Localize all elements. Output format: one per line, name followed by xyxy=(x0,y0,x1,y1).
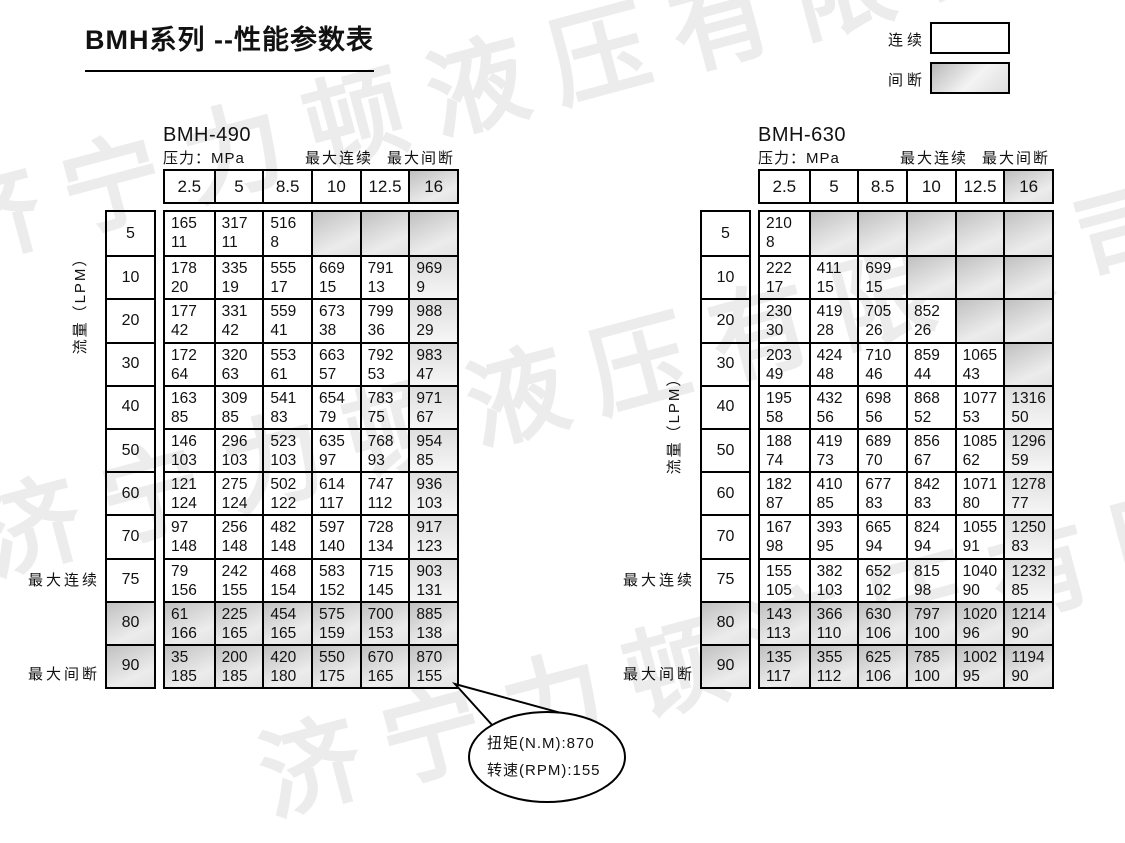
data-grid: 2108222174111569915230304192870526852262… xyxy=(758,210,1054,689)
speed-value: 42 xyxy=(222,321,263,340)
speed-value: 103 xyxy=(222,451,263,470)
data-cell: 33519 xyxy=(214,255,263,298)
data-cell: 76893 xyxy=(360,428,409,471)
bmh-490-table-section: BMH-490 压力：MPa 最大连续 最大间断 2.558.51012.516… xyxy=(0,0,470,700)
flow-cell: 30 xyxy=(107,342,154,385)
torque-value: 1085 xyxy=(963,432,1004,451)
data-cell: 33142 xyxy=(214,298,263,341)
speed-value: 36 xyxy=(368,321,409,340)
torque-value: 1278 xyxy=(1011,475,1052,494)
speed-value: 90 xyxy=(1011,667,1052,686)
data-cell: 67338 xyxy=(311,298,360,341)
torque-value: 135 xyxy=(766,648,809,667)
pressure-unit-label: 压力：MPa xyxy=(163,147,245,168)
data-cell xyxy=(360,212,409,255)
data-cell: 454165 xyxy=(262,601,311,644)
max-continuous-header-label: 最大连续 xyxy=(305,147,373,168)
torque-value: 256 xyxy=(222,518,263,537)
speed-value: 103 xyxy=(416,494,457,513)
pressure-header-row: 2.558.51012.516 xyxy=(758,169,1054,204)
speed-value: 85 xyxy=(817,494,858,513)
data-cell: 20349 xyxy=(760,342,809,385)
torque-value: 1296 xyxy=(1011,432,1052,451)
data-cell: 97167 xyxy=(408,385,457,428)
torque-value: 654 xyxy=(319,389,360,408)
pressure-cell: 8.5 xyxy=(262,171,311,202)
torque-value: 200 xyxy=(222,648,263,667)
torque-value: 182 xyxy=(766,475,809,494)
speed-value: 95 xyxy=(963,667,1004,686)
speed-value: 15 xyxy=(865,278,906,297)
torque-value: 165 xyxy=(171,214,214,233)
data-cell: 66357 xyxy=(311,342,360,385)
max-continuous-header-label: 最大连续 xyxy=(900,147,968,168)
data-cell: 67783 xyxy=(857,471,906,514)
speed-value: 52 xyxy=(914,408,955,427)
data-cell: 66594 xyxy=(857,514,906,557)
torque-value: 222 xyxy=(766,259,809,278)
torque-value: 868 xyxy=(914,389,955,408)
data-cell: 86852 xyxy=(906,385,955,428)
data-cell: 670165 xyxy=(360,644,409,687)
speed-value: 56 xyxy=(865,408,906,427)
speed-value: 145 xyxy=(368,581,409,600)
torque-value: 824 xyxy=(914,518,955,537)
torque-value: 309 xyxy=(222,389,263,408)
torque-value: 335 xyxy=(222,259,263,278)
torque-value: 516 xyxy=(270,214,311,233)
flow-cell: 75 xyxy=(702,558,749,601)
data-cell: 68970 xyxy=(857,428,906,471)
torque-value: 783 xyxy=(368,389,409,408)
torque-value: 97 xyxy=(171,518,214,537)
torque-value: 785 xyxy=(914,648,955,667)
data-cell: 482148 xyxy=(262,514,311,557)
torque-value: 954 xyxy=(416,432,457,451)
torque-value: 1194 xyxy=(1011,648,1052,667)
flow-axis-label: 流量（LPM） xyxy=(663,362,683,482)
data-cell: 575159 xyxy=(311,601,360,644)
torque-value: 1077 xyxy=(963,389,1004,408)
torque-value: 143 xyxy=(766,605,809,624)
speed-value: 100 xyxy=(914,667,955,686)
torque-value: 553 xyxy=(270,346,311,365)
torque-value: 1040 xyxy=(963,562,1004,581)
data-cell: 81598 xyxy=(906,558,955,601)
speed-value: 117 xyxy=(319,494,360,513)
data-cell: 85226 xyxy=(906,298,955,341)
speed-value: 74 xyxy=(766,451,809,470)
flow-cell: 60 xyxy=(107,471,154,514)
speed-value: 11 xyxy=(171,233,214,252)
speed-value: 154 xyxy=(270,581,311,600)
data-cell: 104090 xyxy=(955,558,1004,601)
data-cell: 17264 xyxy=(165,342,214,385)
torque-value: 167 xyxy=(766,518,809,537)
torque-value: 178 xyxy=(171,259,214,278)
torque-value: 541 xyxy=(270,389,311,408)
data-cell: 42448 xyxy=(809,342,858,385)
torque-value: 420 xyxy=(270,648,311,667)
data-cell: 18287 xyxy=(760,471,809,514)
data-cell: 143113 xyxy=(760,601,809,644)
data-cell: 63597 xyxy=(311,428,360,471)
torque-value: 670 xyxy=(368,648,409,667)
max-intermittent-header-label: 最大间断 xyxy=(387,147,455,168)
torque-value: 983 xyxy=(416,346,457,365)
data-cell: 41085 xyxy=(809,471,858,514)
data-cell: 715145 xyxy=(360,558,409,601)
pressure-header-row: 2.558.51012.516 xyxy=(163,169,459,204)
torque-value: 917 xyxy=(416,518,457,537)
torque-value: 482 xyxy=(270,518,311,537)
torque-value: 410 xyxy=(817,475,858,494)
torque-value: 210 xyxy=(766,214,809,233)
speed-value: 90 xyxy=(1011,624,1052,643)
speed-value: 140 xyxy=(319,537,360,556)
data-cell: 700153 xyxy=(360,601,409,644)
torque-value: 559 xyxy=(270,302,311,321)
torque-value: 382 xyxy=(817,562,858,581)
torque-value: 669 xyxy=(319,259,360,278)
speed-value: 96 xyxy=(963,624,1004,643)
data-cell: 135117 xyxy=(760,644,809,687)
torque-value: 652 xyxy=(865,562,906,581)
pressure-cell: 10 xyxy=(906,171,955,202)
data-cell: 155105 xyxy=(760,558,809,601)
torque-value: 715 xyxy=(368,562,409,581)
pressure-cell: 12.5 xyxy=(360,171,409,202)
speed-value: 77 xyxy=(1011,494,1052,513)
speed-value: 106 xyxy=(865,667,906,686)
speed-value: 26 xyxy=(914,321,955,340)
data-cell: 105591 xyxy=(955,514,1004,557)
speed-value: 30 xyxy=(766,321,809,340)
speed-value: 159 xyxy=(319,624,360,643)
torque-value: 792 xyxy=(368,346,409,365)
data-cell: 18874 xyxy=(760,428,809,471)
data-cell: 355112 xyxy=(809,644,858,687)
torque-value: 791 xyxy=(368,259,409,278)
pressure-cell: 8.5 xyxy=(857,171,906,202)
speed-value: 46 xyxy=(865,365,906,384)
speed-value: 155 xyxy=(416,667,457,686)
max-intermittent-row-label: 最大间断 xyxy=(597,663,695,684)
speed-value: 83 xyxy=(865,494,906,513)
torque-value: 275 xyxy=(222,475,263,494)
speed-value: 9 xyxy=(416,278,457,297)
speed-value: 49 xyxy=(766,365,809,384)
data-cell: 523103 xyxy=(262,428,311,471)
torque-value: 163 xyxy=(171,389,214,408)
data-cell: 69856 xyxy=(857,385,906,428)
speed-value: 138 xyxy=(416,624,457,643)
speed-value: 56 xyxy=(817,408,858,427)
speed-value: 15 xyxy=(319,278,360,297)
speed-value: 61 xyxy=(270,365,311,384)
torque-value: 852 xyxy=(914,302,955,321)
torque-value: 555 xyxy=(270,259,311,278)
data-cell: 885138 xyxy=(408,601,457,644)
torque-value: 203 xyxy=(766,346,809,365)
speed-value: 106 xyxy=(865,624,906,643)
torque-value: 1232 xyxy=(1011,562,1052,581)
torque-value: 677 xyxy=(865,475,906,494)
speed-value: 93 xyxy=(368,451,409,470)
torque-value: 1071 xyxy=(963,475,1004,494)
speed-value: 59 xyxy=(1011,451,1052,470)
data-cell: 19558 xyxy=(760,385,809,428)
speed-value: 97 xyxy=(319,451,360,470)
callout-text: 扭矩(N.M):870 转速(RPM):155 xyxy=(487,730,601,784)
flow-cell: 60 xyxy=(702,471,749,514)
speed-value: 148 xyxy=(270,537,311,556)
data-cell: 79253 xyxy=(360,342,409,385)
speed-value: 122 xyxy=(270,494,311,513)
speed-value: 53 xyxy=(368,365,409,384)
speed-value: 85 xyxy=(222,408,263,427)
torque-value: 424 xyxy=(817,346,858,365)
speed-value: 103 xyxy=(171,451,214,470)
torque-value: 988 xyxy=(416,302,457,321)
torque-value: 856 xyxy=(914,432,955,451)
speed-value: 47 xyxy=(416,365,457,384)
speed-value: 17 xyxy=(766,278,809,297)
flow-cell: 30 xyxy=(702,342,749,385)
data-cell: 9699 xyxy=(408,255,457,298)
torque-value: 523 xyxy=(270,432,311,451)
torque-value: 177 xyxy=(171,302,214,321)
torque-value: 1316 xyxy=(1011,389,1052,408)
torque-value: 468 xyxy=(270,562,311,581)
data-cell xyxy=(955,212,1004,255)
data-cell: 17742 xyxy=(165,298,214,341)
data-cell: 903131 xyxy=(408,558,457,601)
data-cell: 597140 xyxy=(311,514,360,557)
speed-value: 185 xyxy=(171,667,214,686)
data-cell: 747112 xyxy=(360,471,409,514)
torque-value: 1055 xyxy=(963,518,1004,537)
torque-value: 698 xyxy=(865,389,906,408)
torque-value: 689 xyxy=(865,432,906,451)
torque-value: 815 xyxy=(914,562,955,581)
data-cell: 31711 xyxy=(214,212,263,255)
speed-value: 75 xyxy=(368,408,409,427)
speed-value: 153 xyxy=(368,624,409,643)
data-cell: 106543 xyxy=(955,342,1004,385)
torque-value: 665 xyxy=(865,518,906,537)
flow-cell: 10 xyxy=(107,255,154,298)
flow-cell: 20 xyxy=(702,298,749,341)
torque-value: 79 xyxy=(171,562,214,581)
speed-value: 62 xyxy=(963,451,1004,470)
data-cell: 146103 xyxy=(165,428,214,471)
data-cell: 256148 xyxy=(214,514,263,557)
data-cell xyxy=(408,212,457,255)
speed-value: 67 xyxy=(416,408,457,427)
speed-value: 166 xyxy=(171,624,214,643)
data-cell: 102096 xyxy=(955,601,1004,644)
table-title: BMH-630 xyxy=(758,124,846,147)
data-cell: 728134 xyxy=(360,514,409,557)
torque-value: 225 xyxy=(222,605,263,624)
speed-value: 91 xyxy=(963,537,1004,556)
data-cell xyxy=(311,212,360,255)
data-cell: 79156 xyxy=(165,558,214,601)
torque-value: 432 xyxy=(817,389,858,408)
torque-value: 296 xyxy=(222,432,263,451)
speed-value: 19 xyxy=(222,278,263,297)
torque-value: 885 xyxy=(416,605,457,624)
data-cell: 129659 xyxy=(1003,428,1052,471)
torque-value: 61 xyxy=(171,605,214,624)
speed-value: 85 xyxy=(171,408,214,427)
speed-value: 155 xyxy=(222,581,263,600)
data-cell: 107753 xyxy=(955,385,1004,428)
torque-value: 700 xyxy=(368,605,409,624)
torque-value: 195 xyxy=(766,389,809,408)
torque-value: 747 xyxy=(368,475,409,494)
data-cell: 107180 xyxy=(955,471,1004,514)
speed-value: 38 xyxy=(319,321,360,340)
speed-value: 98 xyxy=(766,537,809,556)
speed-value: 28 xyxy=(817,321,858,340)
data-cell: 78375 xyxy=(360,385,409,428)
data-cell: 797100 xyxy=(906,601,955,644)
speed-value: 105 xyxy=(766,581,809,600)
speed-value: 17 xyxy=(270,278,311,297)
torque-value: 230 xyxy=(766,302,809,321)
speed-value: 112 xyxy=(368,494,409,513)
speed-value: 26 xyxy=(865,321,906,340)
speed-value: 94 xyxy=(914,537,955,556)
torque-value: 320 xyxy=(222,346,263,365)
speed-value: 103 xyxy=(817,581,858,600)
data-cell: 125083 xyxy=(1003,514,1052,557)
data-cell: 468154 xyxy=(262,558,311,601)
torque-value: 630 xyxy=(865,605,906,624)
data-cell xyxy=(809,212,858,255)
speed-value: 58 xyxy=(766,408,809,427)
data-cell: 652102 xyxy=(857,558,906,601)
data-cell: 70526 xyxy=(857,298,906,341)
data-cell: 550175 xyxy=(311,644,360,687)
speed-value: 124 xyxy=(222,494,263,513)
speed-value: 50 xyxy=(1011,408,1052,427)
data-cell: 95485 xyxy=(408,428,457,471)
pressure-cell: 2.5 xyxy=(760,171,809,202)
torque-value: 625 xyxy=(865,648,906,667)
torque-value: 859 xyxy=(914,346,955,365)
torque-value: 155 xyxy=(766,562,809,581)
torque-value: 663 xyxy=(319,346,360,365)
data-cell xyxy=(1003,342,1052,385)
data-cell: 119490 xyxy=(1003,644,1052,687)
torque-value: 366 xyxy=(817,605,858,624)
speed-value: 131 xyxy=(416,581,457,600)
torque-value: 768 xyxy=(368,432,409,451)
table-title: BMH-490 xyxy=(163,124,251,147)
data-cell: 630106 xyxy=(857,601,906,644)
torque-value: 1065 xyxy=(963,346,1004,365)
data-cell: 23030 xyxy=(760,298,809,341)
flow-cell: 75 xyxy=(107,558,154,601)
speed-value: 94 xyxy=(865,537,906,556)
flow-cell: 80 xyxy=(107,601,154,644)
torque-value: 331 xyxy=(222,302,263,321)
data-cell: 200185 xyxy=(214,644,263,687)
flow-cell: 5 xyxy=(107,212,154,255)
data-cell: 242155 xyxy=(214,558,263,601)
torque-value: 146 xyxy=(171,432,214,451)
speed-value: 123 xyxy=(416,537,457,556)
data-cell: 614117 xyxy=(311,471,360,514)
pressure-cell: 16 xyxy=(408,171,457,202)
flow-cell: 10 xyxy=(702,255,749,298)
data-cell: 82494 xyxy=(906,514,955,557)
torque-value: 583 xyxy=(319,562,360,581)
torque-value: 710 xyxy=(865,346,906,365)
data-cell: 32063 xyxy=(214,342,263,385)
flow-cell: 50 xyxy=(702,428,749,471)
speed-value: 85 xyxy=(1011,581,1052,600)
torque-value: 419 xyxy=(817,302,858,321)
data-cell: 16798 xyxy=(760,514,809,557)
data-cell: 382103 xyxy=(809,558,858,601)
speed-value: 11 xyxy=(222,233,263,252)
data-cell: 41973 xyxy=(809,428,858,471)
pressure-cell: 5 xyxy=(214,171,263,202)
data-cell: 30985 xyxy=(214,385,263,428)
speed-value: 70 xyxy=(865,451,906,470)
speed-value: 67 xyxy=(914,451,955,470)
speed-value: 185 xyxy=(222,667,263,686)
torque-value: 172 xyxy=(171,346,214,365)
data-cell: 108562 xyxy=(955,428,1004,471)
data-grid: 1651131711516817820335195551766915791139… xyxy=(163,210,459,689)
flow-cell: 5 xyxy=(702,212,749,255)
speed-value: 175 xyxy=(319,667,360,686)
flow-column: 510203040506070758090 xyxy=(105,210,156,689)
torque-value: 1250 xyxy=(1011,518,1052,537)
data-cell: 275124 xyxy=(214,471,263,514)
data-cell: 98829 xyxy=(408,298,457,341)
speed-value: 8 xyxy=(766,233,809,252)
data-cell xyxy=(1003,212,1052,255)
max-intermittent-header-label: 最大间断 xyxy=(982,147,1050,168)
speed-value: 156 xyxy=(171,581,214,600)
data-cell: 54183 xyxy=(262,385,311,428)
torque-value: 121 xyxy=(171,475,214,494)
data-cell: 43256 xyxy=(809,385,858,428)
speed-value: 110 xyxy=(817,624,858,643)
data-cell: 98347 xyxy=(408,342,457,385)
torque-value: 502 xyxy=(270,475,311,494)
speed-value: 15 xyxy=(817,278,858,297)
torque-value: 454 xyxy=(270,605,311,624)
data-cell: 79113 xyxy=(360,255,409,298)
data-cell: 296103 xyxy=(214,428,263,471)
data-cell: 41115 xyxy=(809,255,858,298)
torque-value: 393 xyxy=(817,518,858,537)
data-cell: 85667 xyxy=(906,428,955,471)
data-cell xyxy=(906,212,955,255)
speed-value: 83 xyxy=(1011,537,1052,556)
speed-value: 85 xyxy=(416,451,457,470)
data-cell: 100295 xyxy=(955,644,1004,687)
flow-axis-label: 流量（LPM） xyxy=(69,242,89,362)
flow-cell: 20 xyxy=(107,298,154,341)
